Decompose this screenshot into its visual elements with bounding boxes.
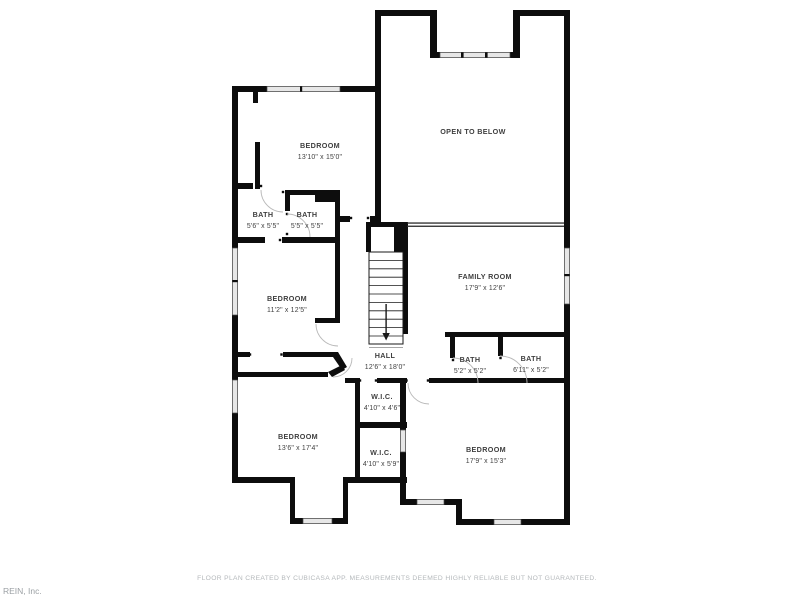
room-label-bedroom-mid-name: BEDROOM [267,294,307,303]
room-label-family-room-dims: 17'9" x 12'6" [465,285,506,292]
room-label-wic1-dims: 4'10" x 4'6" [364,405,401,412]
window [232,380,237,413]
room-label-bedroom-top-dims: 13'10" x 15'0" [298,154,343,161]
window [440,52,510,57]
stairs [369,252,403,348]
room-label-bedroom-sw-dims: 13'6" x 17'4" [278,445,319,452]
railing [407,222,564,227]
room-label-bath-mid-dims: 5'5" x 5'5" [291,223,324,230]
room-label-bedroom-top-name: BEDROOM [300,141,340,150]
room-label-bedroom-sw-name: BEDROOM [278,432,318,441]
stairs-direction-arrow-icon [382,304,389,341]
floor-plan-page: BEDROOM 13'10" x 15'0" OPEN TO BELOW BAT… [0,0,800,600]
footer-disclaimer: FLOOR PLAN CREATED BY CUBICASA APP. MEAS… [197,575,597,582]
floor-plan-drawing: BEDROOM 13'10" x 15'0" OPEN TO BELOW BAT… [0,0,800,600]
pocket-door [400,430,405,452]
room-label-bedroom-se-name: BEDROOM [466,445,506,454]
room-label-bath-right1-dims: 5'2" x 5'2" [454,368,487,375]
window [267,86,340,91]
room-label-hall-name: HALL [375,351,396,360]
room-label-bath-right2-dims: 6'11" x 5'2" [513,367,549,374]
room-labels: BEDROOM 13'10" x 15'0" OPEN TO BELOW BAT… [247,127,549,468]
room-label-bath-mid-name: BATH [297,210,318,219]
room-label-bath-right1-name: BATH [460,355,481,364]
room-label-bath-left-dims: 5'6" x 5'5" [247,223,280,230]
window [303,518,332,523]
room-label-bedroom-se-dims: 17'9" x 15'3" [466,458,507,465]
brand-watermark: REIN, Inc. [3,586,42,596]
room-label-open-to-below: OPEN TO BELOW [440,127,506,136]
window [417,499,444,504]
room-label-family-room-name: FAMILY ROOM [458,272,512,281]
room-label-bedroom-mid-dims: 11'2" x 12'5" [267,307,307,314]
room-label-wic2-name: W.I.C. [370,448,392,457]
room-label-bath-left-name: BATH [253,210,274,219]
room-label-wic2-dims: 4'10" x 5'9" [363,461,400,468]
room-label-bath-right2-name: BATH [521,354,542,363]
room-label-hall-dims: 12'6" x 18'0" [365,364,406,371]
room-label-wic1-name: W.I.C. [371,392,393,401]
window [494,519,521,524]
